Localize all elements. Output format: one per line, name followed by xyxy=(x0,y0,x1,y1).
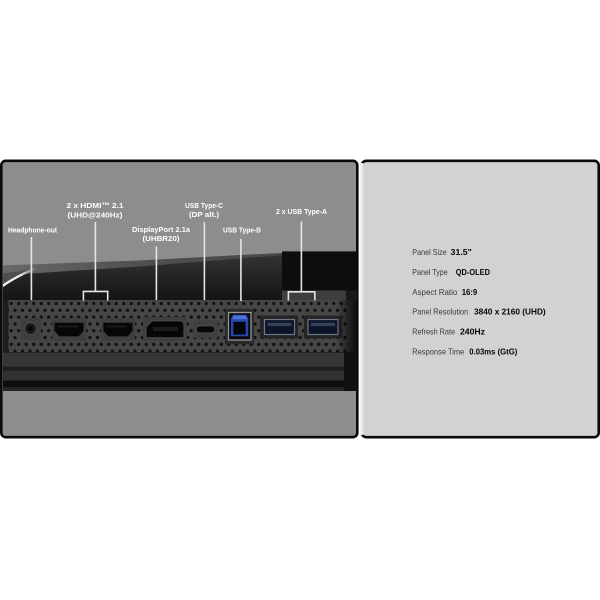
svg-text:DisplayPort 2.1a: DisplayPort 2.1a xyxy=(132,225,191,234)
svg-text:Panel Size: Panel Size xyxy=(412,247,447,257)
svg-text:16:9: 16:9 xyxy=(462,287,478,297)
svg-text:Aspect Ratio: Aspect Ratio xyxy=(412,287,457,297)
svg-text:Panel Type: Panel Type xyxy=(412,267,448,277)
svg-text:(UHD@240Hz): (UHD@240Hz) xyxy=(68,211,123,220)
svg-text:2 x HDMI™ 2.1: 2 x HDMI™ 2.1 xyxy=(67,201,125,210)
svg-text:Response Time: Response Time xyxy=(412,347,464,357)
svg-text:USB Type-B: USB Type-B xyxy=(223,226,261,235)
svg-text:31.5": 31.5" xyxy=(451,247,472,257)
svg-text:Headphone-out: Headphone-out xyxy=(8,226,57,235)
svg-text:QD-OLED: QD-OLED xyxy=(456,267,490,277)
svg-text:Refresh Rate: Refresh Rate xyxy=(412,327,455,337)
svg-text:0.03ms (GtG): 0.03ms (GtG) xyxy=(469,347,517,357)
svg-text:USB Type-C: USB Type-C xyxy=(185,201,223,210)
svg-text:3840 x 2160 (UHD): 3840 x 2160 (UHD) xyxy=(474,307,546,317)
svg-text:240Hz: 240Hz xyxy=(460,327,485,337)
svg-text:(DP alt.): (DP alt.) xyxy=(189,210,219,219)
svg-text:2 x USB Type-A: 2 x USB Type-A xyxy=(276,207,327,216)
svg-text:Panel Resolution: Panel Resolution xyxy=(412,307,468,317)
svg-text:(UHBR20): (UHBR20) xyxy=(143,234,180,243)
